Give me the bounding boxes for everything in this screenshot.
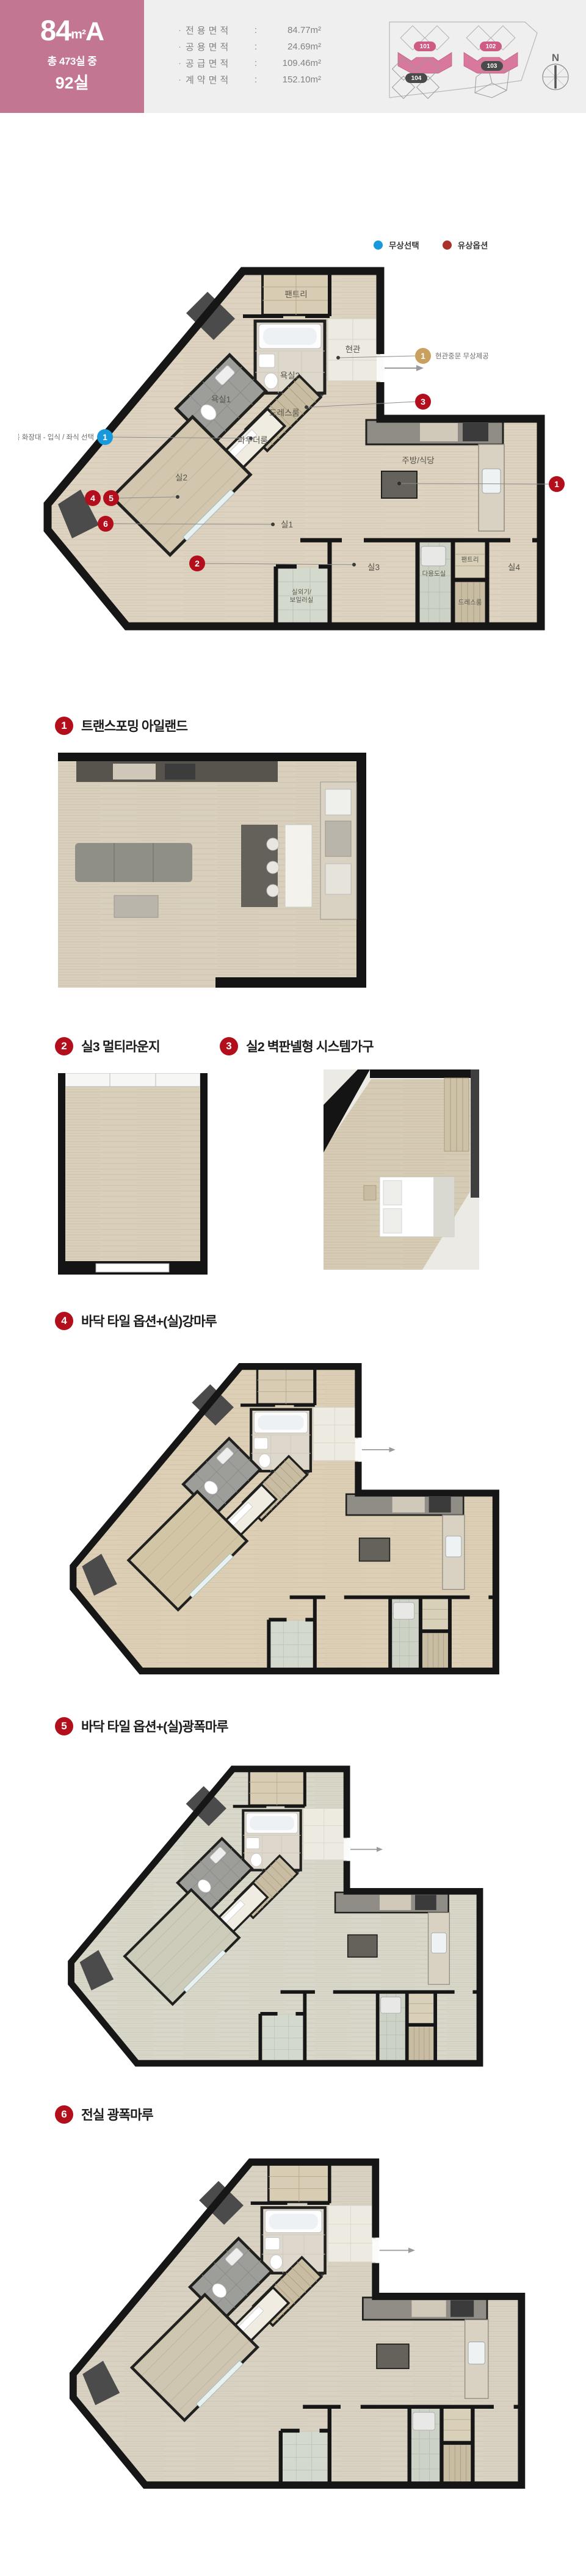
svg-text:1: 1 (421, 351, 425, 361)
legend-free: 무상선택 (374, 239, 419, 251)
section-2-header: 2 실3 멀티라운지 (55, 1037, 160, 1055)
section-1-header: 1 트랜스포밍 아일랜드 (55, 716, 187, 735)
section-3-image (324, 1069, 479, 1270)
section-4-floorplan (49, 1354, 510, 1684)
room-label-room4: 실4 (508, 563, 520, 572)
unit-type-title: 84m²A (0, 16, 144, 45)
room-label-dress2: 드레스룸 (458, 599, 482, 606)
main-floorplan: 팬트리 현관 욕실2 욕실1 드레스룸 파우더룸 실2 실1 주방/식당 실3 … (18, 259, 568, 650)
section-2-number-badge: 2 (55, 1037, 73, 1055)
unit-type-unit: m² (71, 27, 85, 42)
unit-count-line2: 92실 (0, 70, 144, 93)
area-value: 152.10m² (265, 74, 321, 85)
section-3-number-badge: 3 (220, 1037, 238, 1055)
options-legend: 무상선택 유상옵션 (374, 239, 488, 251)
room-label-room2: 실2 (175, 473, 187, 482)
room-label-pantry2: 팬트리 (461, 556, 479, 563)
room-label-powder: 파우더룸 (237, 436, 268, 445)
building-101: 101 (398, 26, 452, 73)
section-4-number-badge: 4 (55, 1312, 73, 1330)
area-value: 24.69m² (265, 42, 321, 52)
section-6-number-badge: 6 (55, 2105, 73, 2124)
section-6-header: 6 전실 광폭마루 (55, 2105, 153, 2124)
svg-text:4: 4 (90, 493, 95, 503)
room-label-utility: 다용도실 (422, 570, 446, 577)
section-1-image (58, 753, 366, 988)
room-label-room1: 실1 (281, 520, 293, 529)
svg-text:1: 1 (554, 479, 559, 489)
svg-text:2: 2 (195, 559, 200, 568)
svg-text:104: 104 (411, 75, 422, 82)
svg-text:6: 6 (103, 519, 108, 529)
compass-icon: N (543, 52, 568, 90)
section-4-header: 4 바닥 타일 옵션+(실)강마루 (55, 1311, 217, 1330)
area-row: · 공급면적 : 109.46m² (178, 55, 321, 71)
unit-type-number: 84 (40, 14, 71, 46)
section-5-title: 바닥 타일 옵션+(실)광폭마루 (81, 1717, 228, 1735)
area-value: 84.77m² (265, 25, 321, 35)
svg-text:N: N (552, 52, 559, 63)
section-6-title: 전실 광폭마루 (81, 2105, 153, 2124)
room-label-dress1: 드레스룸 (269, 408, 300, 418)
area-row: · 계약면적 : 152.10m² (178, 71, 321, 88)
section-5-floorplan (48, 1757, 493, 2075)
svg-text:101: 101 (420, 43, 430, 50)
section-3-title: 실2 벽판넬형 시스템가구 (246, 1037, 374, 1055)
room-label-boiler-1: 실외기/ (292, 588, 311, 596)
section-2-image (58, 1073, 208, 1275)
legend-paid: 유상옵션 (443, 239, 488, 251)
area-row: · 공용면적 : 24.69m² (178, 38, 321, 55)
section-1-title: 트랜스포밍 아일랜드 (81, 716, 187, 735)
unit-type-band: 84m²A 총 473실 중 92실 (0, 0, 144, 113)
site-map-thumbnail: 101 102 103 104 N (380, 5, 576, 109)
legend-free-dot-icon (374, 241, 383, 250)
area-row: · 전용면적 : 84.77m² (178, 22, 321, 38)
room-label-kitchen: 주방/식당 (402, 456, 434, 465)
svg-text:103: 103 (487, 63, 497, 70)
area-label: 계약면적 (186, 73, 247, 86)
svg-text:1: 1 (103, 432, 107, 442)
section-5-number-badge: 5 (55, 1717, 73, 1735)
svg-text:5: 5 (109, 493, 114, 503)
legend-paid-dot-icon (443, 241, 452, 250)
svg-text:3: 3 (421, 397, 425, 407)
area-value: 109.46m² (265, 58, 321, 68)
unit-count-line1: 총 473실 중 (0, 52, 144, 68)
section-6-floorplan (48, 2149, 536, 2498)
brochure-page: 84m²A 총 473실 중 92실 · 전용면적 : 84.77m² · 공용… (0, 0, 586, 2576)
section-4-title: 바닥 타일 옵션+(실)강마루 (81, 1311, 217, 1330)
room-label-bath1: 욕실1 (211, 395, 231, 404)
area-info-list: · 전용면적 : 84.77m² · 공용면적 : 24.69m² · 공급면적… (178, 22, 321, 88)
section-1-number-badge: 1 (55, 717, 73, 735)
area-label: 전용면적 (186, 24, 247, 37)
room-label-entrance: 현관 (345, 345, 361, 354)
section-3-header: 3 실2 벽판넬형 시스템가구 (220, 1037, 374, 1055)
room-label-bath2: 욕실2 (280, 371, 300, 380)
room-label-room3: 실3 (367, 563, 380, 572)
area-label: 공용면적 (186, 40, 247, 53)
svg-text:102: 102 (486, 43, 496, 50)
section-2-title: 실3 멀티라운지 (81, 1037, 160, 1055)
callout-gold-1-label: 현관중문 무상제공 (435, 352, 489, 360)
room-label-boiler-2: 보일러실 (290, 596, 314, 604)
callout-free-1-label: 파우더룸 화장대 - 입식 / 좌식 선택 (18, 433, 94, 441)
unit-type-suffix: A (85, 17, 104, 46)
area-label: 공급면적 (186, 57, 247, 70)
section-5-header: 5 바닥 타일 옵션+(실)광폭마루 (55, 1717, 228, 1735)
room-label-pantry1: 팬트리 (284, 290, 307, 299)
